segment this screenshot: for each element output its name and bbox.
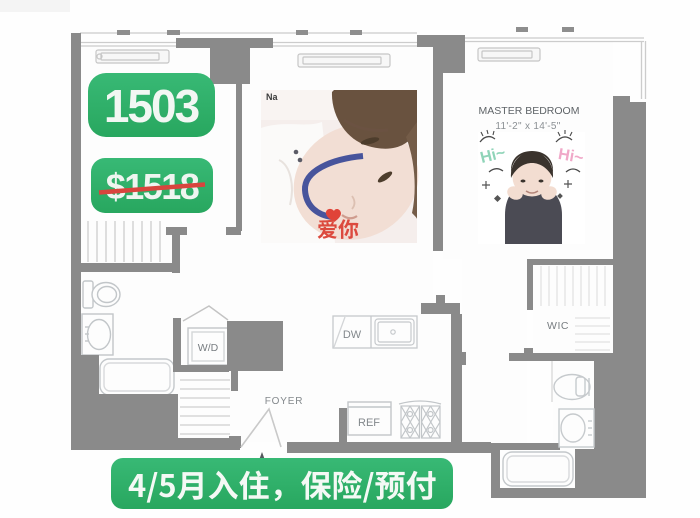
svg-text:MASTER BEDROOM: MASTER BEDROOM [479,105,580,117]
svg-text:WIC: WIC [547,320,569,332]
svg-text:FOYER: FOYER [265,396,303,407]
svg-text:DW: DW [343,329,362,341]
svg-text:W/D: W/D [198,342,219,354]
svg-text:1503: 1503 [104,80,199,132]
svg-text:11'-2" x 14'-5": 11'-2" x 14'-5" [495,121,560,132]
svg-text:Na: Na [266,92,278,102]
svg-text:REF: REF [358,417,380,429]
